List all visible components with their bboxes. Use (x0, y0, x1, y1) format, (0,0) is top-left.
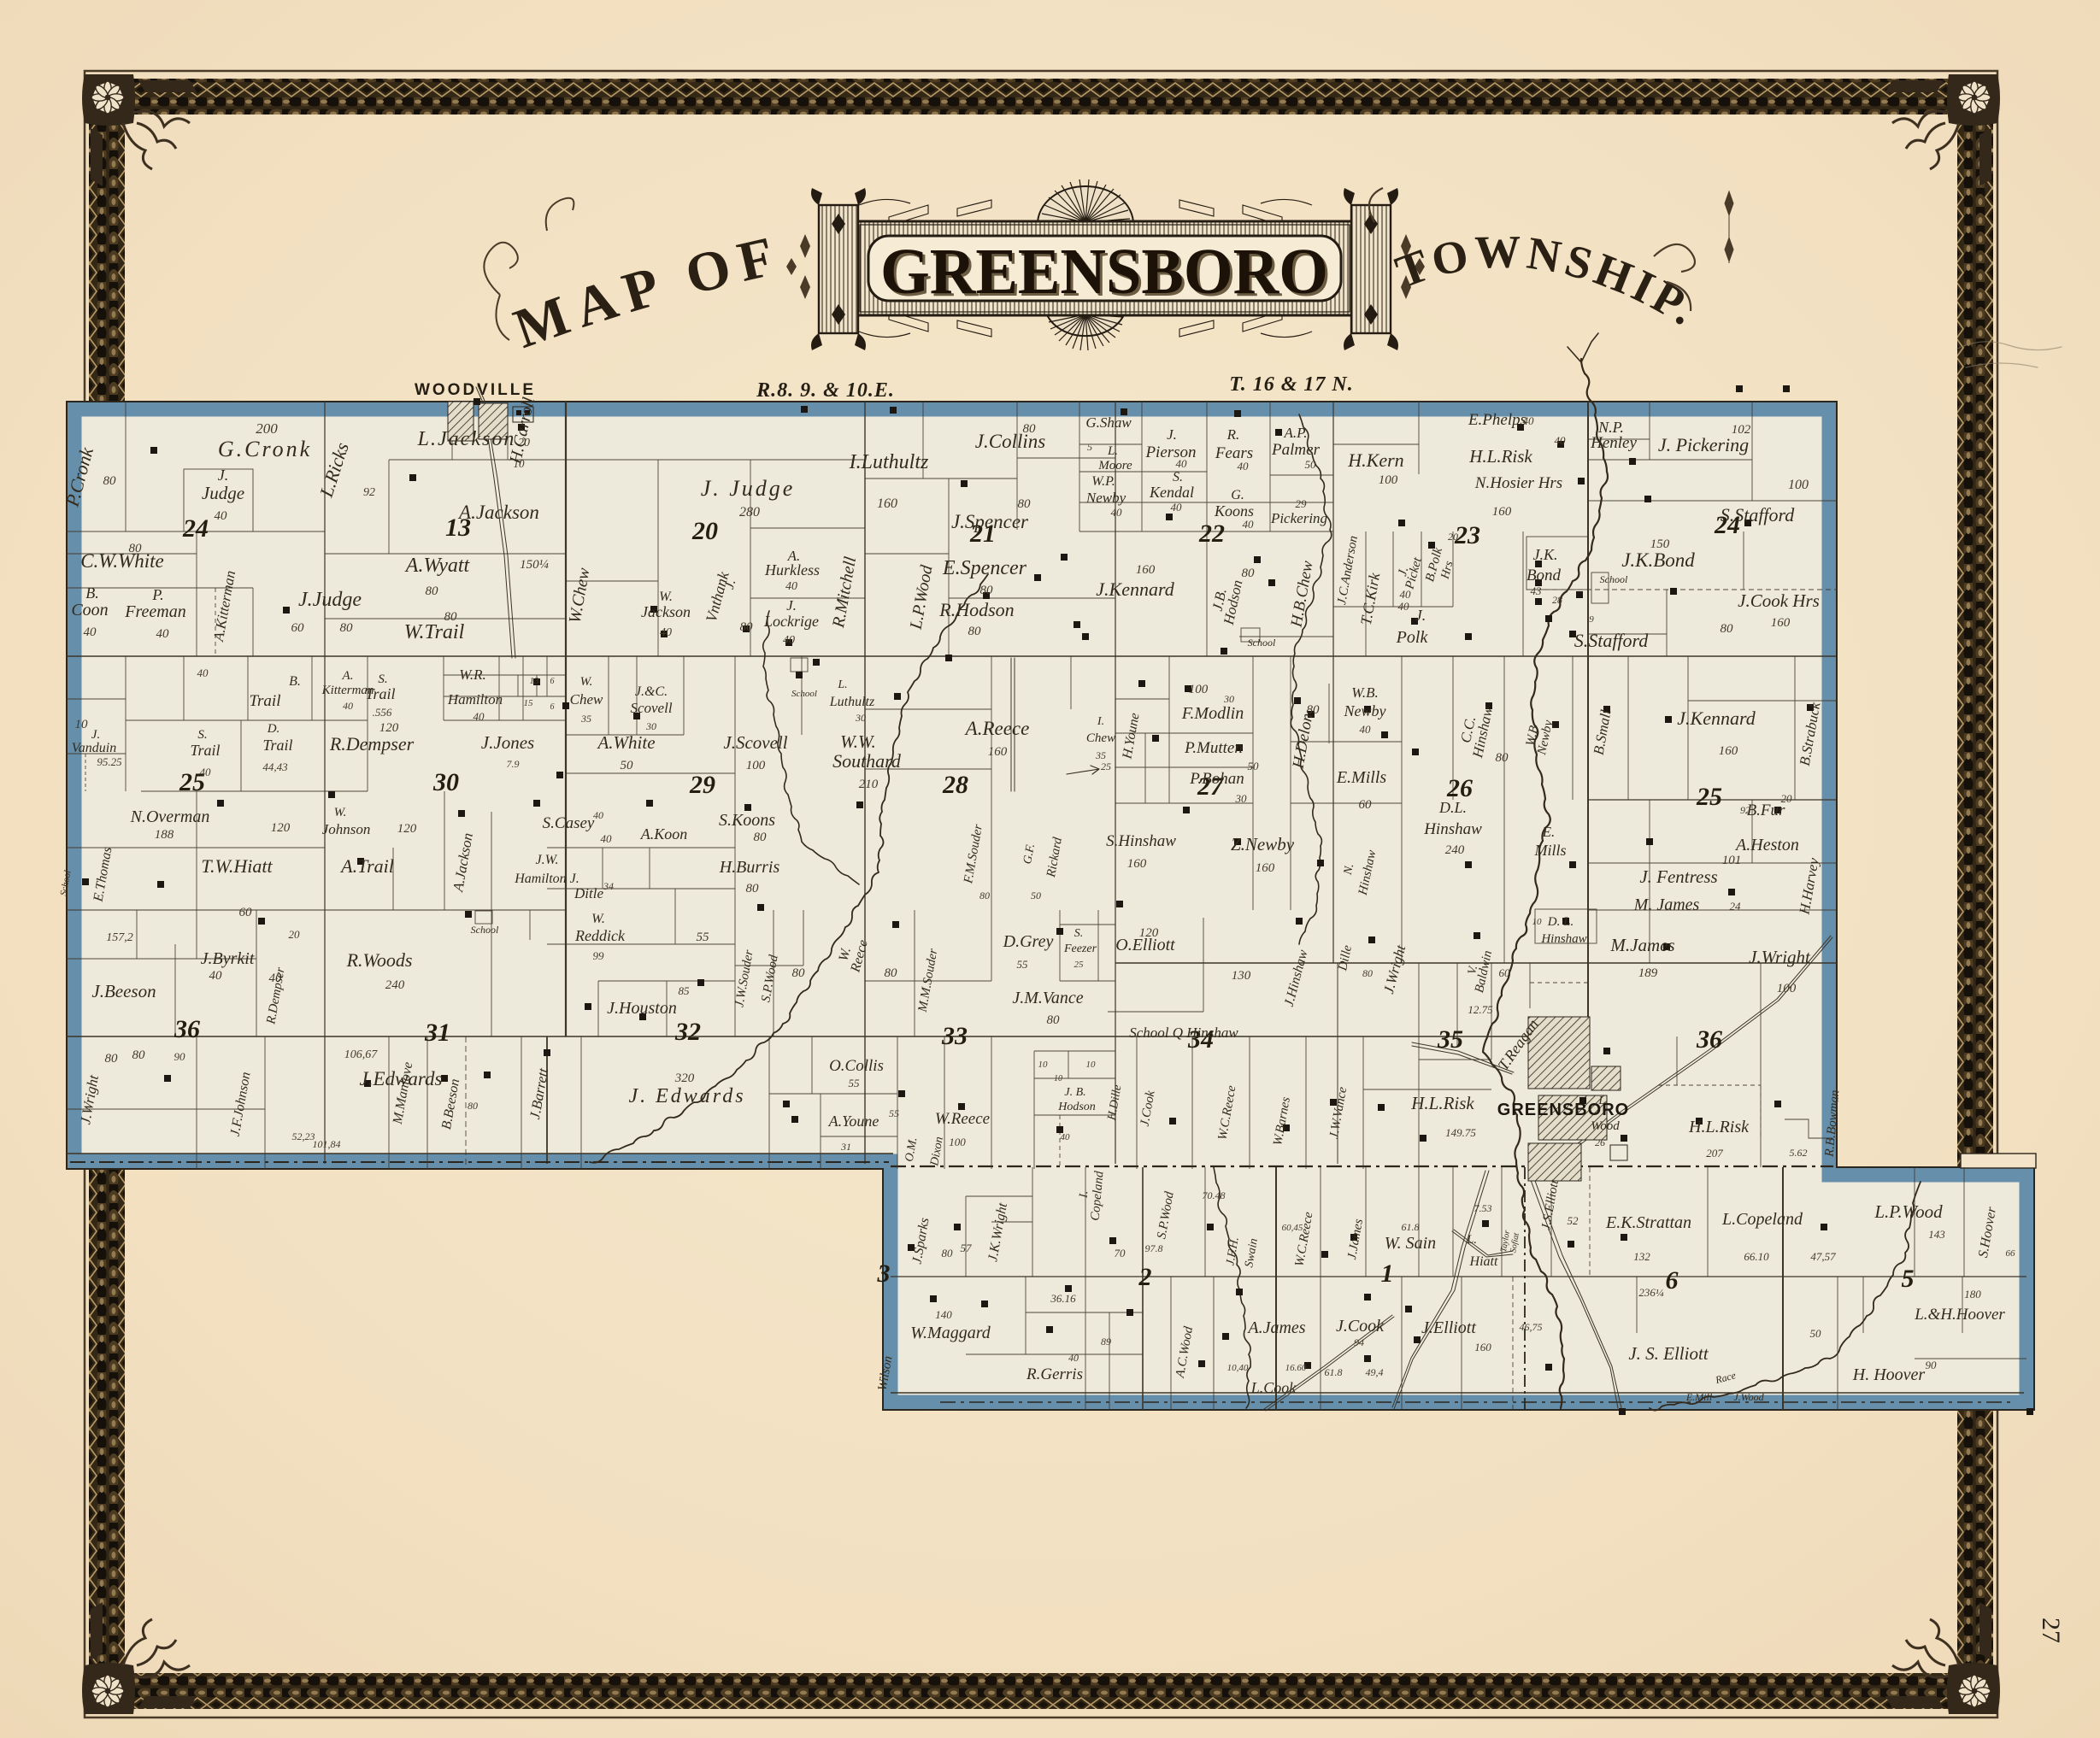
svg-text:Henley: Henley (1590, 434, 1637, 452)
svg-text:L.P.Wood: L.P.Wood (1874, 1201, 1943, 1222)
svg-text:S.Koons: S.Koons (719, 811, 775, 830)
svg-text:188: 188 (155, 828, 174, 842)
svg-text:J.Judge: J.Judge (298, 589, 362, 611)
svg-text:320: 320 (674, 1072, 695, 1085)
svg-text:80: 80 (129, 542, 143, 555)
svg-text:32: 32 (674, 1018, 701, 1046)
svg-text:20: 20 (1781, 792, 1793, 805)
svg-text:60: 60 (1499, 966, 1511, 979)
svg-text:School: School (791, 689, 817, 699)
svg-text:28: 28 (942, 771, 968, 799)
svg-text:70.48: 70.48 (1203, 1189, 1226, 1201)
svg-text:66.10: 66.10 (1744, 1250, 1769, 1263)
svg-text:236¼: 236¼ (1638, 1286, 1664, 1299)
svg-text:40: 40 (156, 627, 170, 641)
svg-text:Hiatt: Hiatt (1469, 1254, 1498, 1269)
svg-text:6: 6 (550, 677, 555, 686)
svg-text:80: 80 (1018, 497, 1032, 511)
svg-text:J. Pickering: J. Pickering (1658, 434, 1749, 455)
svg-text:35: 35 (1095, 749, 1106, 761)
svg-text:A.P.: A.P. (1283, 425, 1307, 441)
svg-text:J.Beeson: J.Beeson (91, 981, 156, 1001)
svg-text:I.: I. (1097, 715, 1104, 728)
svg-text:B.: B. (85, 584, 99, 602)
svg-text:30: 30 (645, 720, 656, 732)
svg-text:R.Woods: R.Woods (346, 949, 413, 971)
svg-text:10: 10 (1038, 1060, 1049, 1070)
svg-text:101,84: 101,84 (313, 1138, 341, 1150)
svg-text:94: 94 (1354, 1336, 1364, 1348)
svg-text:10: 10 (1086, 1060, 1097, 1070)
svg-text:J.K.Bond: J.K.Bond (1621, 549, 1695, 571)
svg-text:D.: D. (267, 722, 280, 736)
svg-text:160: 160 (1136, 563, 1156, 577)
svg-text:44,43: 44,43 (262, 760, 288, 773)
svg-text:40: 40 (1061, 1132, 1071, 1142)
svg-text:Southard: Southard (832, 750, 902, 772)
svg-text:12.75: 12.75 (1468, 1003, 1493, 1016)
svg-text:J.: J. (1415, 607, 1426, 624)
svg-text:A.Heston: A.Heston (1734, 836, 1799, 854)
svg-text:20: 20 (1448, 531, 1458, 543)
svg-text:5: 5 (1087, 441, 1092, 453)
svg-text:Hurkless: Hurkless (764, 561, 820, 578)
svg-text:52: 52 (1568, 1214, 1579, 1227)
svg-text:80: 80 (340, 621, 354, 635)
svg-text:WOODVILLE: WOODVILLE (415, 381, 536, 399)
svg-text:R.Hodson: R.Hodson (938, 599, 1014, 620)
svg-text:80: 80 (1362, 967, 1373, 979)
svg-text:J.Cook: J.Cook (1336, 1317, 1385, 1336)
svg-text:80: 80 (468, 1100, 478, 1112)
svg-text:Bond: Bond (1526, 567, 1562, 584)
svg-text:Johnson: Johnson (322, 821, 371, 837)
svg-text:80: 80 (1242, 567, 1256, 580)
svg-text:GREENSBORO: GREENSBORO (880, 236, 1328, 308)
svg-text:A.Koon: A.Koon (640, 825, 688, 843)
svg-text:80: 80 (754, 831, 768, 844)
svg-text:W.B.: W.B. (1351, 684, 1379, 701)
svg-text:80: 80 (444, 610, 458, 624)
svg-text:7.53: 7.53 (1474, 1202, 1492, 1214)
svg-text:120: 120 (397, 822, 417, 836)
svg-text:Scovell: Scovell (630, 700, 672, 716)
svg-text:Trail: Trail (262, 737, 292, 754)
svg-text:132: 132 (1633, 1250, 1650, 1263)
svg-text:160: 160 (988, 745, 1008, 759)
svg-text:40: 40 (785, 580, 797, 593)
svg-text:15: 15 (524, 698, 534, 708)
svg-text:Freeman: Freeman (124, 602, 185, 621)
svg-text:46,75: 46,75 (1520, 1321, 1543, 1333)
svg-text:160: 160 (1256, 861, 1275, 875)
svg-text:School: School (1248, 637, 1276, 649)
svg-text:7.9: 7.9 (507, 758, 520, 770)
svg-text:40: 40 (1555, 434, 1567, 447)
svg-text:80: 80 (746, 882, 760, 895)
svg-text:Lockrige: Lockrige (763, 613, 819, 630)
svg-text:29: 29 (1296, 497, 1308, 510)
svg-text:School: School (1600, 573, 1628, 585)
svg-text:W.: W. (659, 590, 673, 604)
svg-text:Mills: Mills (1533, 842, 1566, 859)
svg-text:J.Cook Hrs: J.Cook Hrs (1738, 590, 1820, 611)
svg-text:O.Collis: O.Collis (829, 1057, 884, 1075)
svg-text:36.16: 36.16 (1050, 1292, 1076, 1305)
svg-text:70: 70 (1115, 1247, 1126, 1259)
svg-text:F.Modlin: F.Modlin (1181, 704, 1244, 723)
svg-text:H.Burris: H.Burris (719, 858, 780, 877)
svg-text:35: 35 (1437, 1025, 1463, 1054)
svg-text:5.62: 5.62 (1790, 1147, 1808, 1159)
svg-text:31: 31 (840, 1141, 851, 1153)
svg-text:Trail: Trail (250, 692, 281, 710)
svg-text:Hinshaw: Hinshaw (1423, 820, 1482, 838)
svg-text:GREENSBORO: GREENSBORO (1497, 1101, 1629, 1119)
svg-text:M. James: M. James (1633, 895, 1700, 914)
svg-text:A.Youne: A.Youne (828, 1113, 879, 1130)
svg-text:J.W.: J.W. (536, 853, 559, 867)
svg-text:61.8: 61.8 (1402, 1221, 1420, 1233)
svg-text:L.&H.Hoover: L.&H.Hoover (1914, 1306, 2005, 1324)
svg-text:S.: S. (1074, 927, 1084, 940)
svg-text:180: 180 (1964, 1288, 1981, 1301)
svg-text:3: 3 (877, 1259, 891, 1288)
svg-text:M.James: M.James (1609, 935, 1674, 955)
svg-text:50: 50 (1031, 890, 1041, 901)
svg-text:J.Jones: J.Jones (481, 732, 534, 753)
svg-text:13: 13 (530, 676, 540, 686)
svg-text:J.Wright: J.Wright (1749, 947, 1811, 967)
svg-text:280: 280 (739, 505, 760, 520)
svg-text:Polk: Polk (1396, 628, 1429, 647)
svg-text:S.Stafford: S.Stafford (1574, 630, 1650, 651)
svg-text:J. Fentress: J. Fentress (1639, 866, 1717, 887)
svg-text:143: 143 (1928, 1228, 1945, 1241)
svg-text:6: 6 (550, 702, 555, 712)
svg-text:W.: W. (591, 912, 605, 926)
svg-text:A.James: A.James (1246, 1318, 1305, 1337)
svg-text:47,57: 47,57 (1810, 1250, 1836, 1263)
svg-text:100: 100 (1189, 683, 1209, 696)
svg-text:30: 30 (1223, 693, 1234, 705)
svg-text:40: 40 (84, 625, 97, 639)
svg-text:E.: E. (1542, 824, 1556, 840)
svg-text:E.Phelps: E.Phelps (1468, 411, 1526, 429)
svg-text:28: 28 (1552, 594, 1562, 606)
svg-text:9: 9 (1589, 614, 1594, 625)
svg-text:Feezer: Feezer (1063, 942, 1097, 955)
svg-text:H.L.Risk: H.L.Risk (1468, 446, 1532, 467)
svg-text:L.Jackson: L.Jackson (417, 428, 516, 450)
svg-text:W.Maggard: W.Maggard (910, 1324, 991, 1342)
svg-text:50: 50 (1248, 760, 1260, 772)
svg-text:N.Overman: N.Overman (130, 807, 210, 826)
svg-text:160: 160 (1719, 744, 1738, 758)
svg-text:P.Bohan: P.Bohan (1189, 770, 1244, 788)
svg-text:A.Wyatt: A.Wyatt (404, 555, 471, 577)
svg-text:61.8: 61.8 (1325, 1366, 1343, 1378)
svg-text:24: 24 (1730, 900, 1742, 913)
svg-text:36: 36 (174, 1015, 200, 1043)
svg-text:School Q Hinshaw: School Q Hinshaw (1129, 1025, 1238, 1041)
svg-text:R.: R. (1226, 426, 1240, 443)
svg-text:80: 80 (792, 966, 806, 980)
svg-text:J.Wood: J.Wood (1733, 1391, 1764, 1403)
svg-text:150: 150 (1650, 537, 1670, 551)
svg-text:40: 40 (1243, 518, 1255, 531)
svg-text:80: 80 (1721, 622, 1734, 636)
svg-text:L.Cook: L.Cook (1250, 1379, 1297, 1396)
svg-text:80: 80 (968, 625, 982, 638)
svg-text:Z.Newby: Z.Newby (1231, 834, 1295, 854)
svg-text:J.: J. (91, 728, 100, 742)
svg-text:24: 24 (182, 514, 209, 543)
svg-text:1: 1 (1381, 1259, 1394, 1288)
svg-text:29: 29 (689, 771, 715, 799)
svg-text:40: 40 (474, 710, 485, 723)
svg-text:40: 40 (209, 969, 223, 983)
svg-text:Chew: Chew (570, 691, 603, 708)
svg-text:30: 30 (1235, 792, 1248, 805)
svg-text:80: 80 (1047, 1013, 1061, 1027)
svg-text:E.K.Strattan: E.K.Strattan (1605, 1213, 1691, 1232)
svg-text:30: 30 (855, 712, 866, 724)
svg-text:33: 33 (941, 1022, 968, 1050)
svg-text:240: 240 (1445, 843, 1465, 857)
svg-text:Wood: Wood (1591, 1119, 1620, 1133)
svg-text:H.Kern: H.Kern (1347, 449, 1403, 471)
svg-text:J. Edwards: J. Edwards (628, 1085, 745, 1107)
svg-text:27: 27 (2037, 1618, 2065, 1643)
svg-text:160: 160 (877, 496, 897, 511)
svg-text:160: 160 (1127, 857, 1147, 871)
svg-text:6: 6 (1666, 1266, 1679, 1295)
svg-text:10: 10 (1054, 1074, 1062, 1083)
svg-text:40: 40 (1400, 588, 1412, 601)
svg-text:J. S. Elliott: J. S. Elliott (1628, 1343, 1709, 1364)
svg-text:207: 207 (1706, 1147, 1723, 1160)
svg-text:140: 140 (935, 1308, 952, 1321)
svg-text:H. Hoover: H. Hoover (1852, 1365, 1926, 1384)
svg-text:D.L.: D.L. (1438, 799, 1467, 816)
svg-text:95.25: 95.25 (97, 755, 122, 768)
svg-text:50: 50 (1810, 1327, 1822, 1340)
svg-text:L.: L. (1466, 1233, 1477, 1247)
svg-text:40: 40 (1523, 414, 1535, 427)
svg-text:J.Scovell: J.Scovell (723, 732, 787, 753)
svg-text:W.W.: W.W. (840, 731, 876, 752)
svg-text:57: 57 (961, 1242, 973, 1254)
svg-text:G.Cronk: G.Cronk (218, 437, 312, 461)
svg-text:26: 26 (1595, 1136, 1605, 1148)
svg-text:Hodson: Hodson (1057, 1101, 1096, 1113)
svg-text:80: 80 (1496, 751, 1509, 765)
svg-text:I.Luthultz: I.Luthultz (849, 451, 929, 473)
svg-text:School: School (471, 924, 499, 936)
svg-text:92: 92 (363, 486, 375, 499)
svg-text:100: 100 (1788, 478, 1809, 492)
svg-text:36: 36 (1696, 1025, 1722, 1054)
svg-text:L.Copeland: L.Copeland (1721, 1210, 1803, 1229)
svg-text:31: 31 (424, 1019, 450, 1047)
svg-text:40: 40 (1068, 1352, 1079, 1364)
svg-text:A.White: A.White (596, 732, 655, 753)
svg-text:100: 100 (746, 759, 766, 772)
svg-text:55: 55 (697, 931, 710, 944)
svg-text:J.Kennard: J.Kennard (1096, 578, 1174, 600)
svg-text:Ditle: Ditle (574, 885, 603, 901)
svg-text:L.: L. (837, 678, 847, 691)
svg-text:25: 25 (1074, 960, 1085, 970)
svg-text:80: 80 (103, 474, 117, 488)
svg-text:40: 40 (783, 634, 795, 647)
svg-text:40: 40 (1171, 501, 1183, 514)
svg-text:10,40: 10,40 (1227, 1363, 1249, 1373)
svg-text:W.: W. (580, 675, 593, 689)
svg-text:D. L.: D. L. (1547, 915, 1574, 929)
svg-text:40: 40 (1176, 457, 1188, 470)
svg-text:120: 120 (271, 821, 291, 835)
svg-text:5: 5 (1902, 1265, 1915, 1293)
svg-text:G.: G. (1231, 488, 1244, 502)
svg-text:S.Hinshaw: S.Hinshaw (1106, 832, 1176, 850)
svg-text:.556: .556 (373, 706, 392, 719)
svg-text:80: 80 (979, 890, 990, 901)
svg-text:W. Sain: W. Sain (1385, 1234, 1436, 1253)
svg-text:100: 100 (949, 1136, 966, 1148)
svg-text:S.: S. (1173, 470, 1183, 484)
svg-text:160: 160 (1771, 616, 1791, 630)
svg-text:J.Kennard: J.Kennard (1677, 708, 1756, 729)
svg-text:40: 40 (1111, 506, 1123, 519)
svg-text:30: 30 (432, 768, 459, 796)
svg-text:Kendal: Kendal (1149, 484, 1194, 501)
svg-text:S.Stafford: S.Stafford (1721, 504, 1796, 526)
svg-text:A.Reece: A.Reece (964, 718, 1030, 739)
svg-text:J. Judge: J. Judge (701, 476, 796, 501)
svg-text:100: 100 (1777, 982, 1797, 995)
svg-text:55: 55 (849, 1077, 861, 1089)
svg-text:T. 16 & 17 N.: T. 16 & 17 N. (1229, 373, 1353, 396)
svg-text:80: 80 (132, 1048, 146, 1062)
svg-text:150¼: 150¼ (520, 558, 549, 572)
svg-text:B.Fur: B.Fur (1747, 801, 1785, 819)
svg-text:85: 85 (679, 984, 691, 997)
svg-text:60: 60 (291, 621, 305, 635)
svg-text:W.: W. (334, 806, 347, 819)
svg-text:W.Reece: W.Reece (935, 1110, 990, 1128)
svg-text:160: 160 (1492, 505, 1512, 519)
svg-text:50: 50 (1305, 458, 1317, 471)
svg-text:W.R.: W.R. (459, 666, 486, 683)
svg-text:40: 40 (215, 509, 228, 523)
svg-text:189: 189 (1638, 966, 1658, 980)
svg-text:L.: L. (1107, 444, 1118, 458)
svg-text:60: 60 (1359, 798, 1373, 812)
svg-text:R.Gerris: R.Gerris (1026, 1365, 1083, 1383)
svg-text:J.Houston: J.Houston (607, 999, 677, 1018)
svg-text:Hamilton: Hamilton (447, 691, 503, 708)
svg-text:Pickering: Pickering (1270, 510, 1327, 526)
svg-text:240: 240 (385, 978, 405, 992)
svg-text:Trail: Trail (190, 742, 220, 759)
svg-text:N.P.: N.P. (1597, 419, 1624, 436)
svg-text:E.Spencer: E.Spencer (942, 557, 1027, 579)
svg-text:Newby: Newby (1344, 702, 1386, 719)
svg-text:20: 20 (289, 928, 301, 941)
svg-text:W.P.: W.P. (1091, 474, 1115, 489)
svg-text:E.Mills: E.Mills (1336, 768, 1387, 787)
svg-text:40: 40 (343, 700, 353, 712)
svg-text:101: 101 (1722, 854, 1742, 867)
svg-text:S.: S. (378, 672, 387, 686)
svg-text:40: 40 (1360, 723, 1372, 736)
svg-text:Pierson: Pierson (1144, 443, 1196, 461)
svg-text:49,4: 49,4 (1366, 1366, 1384, 1378)
svg-text:40: 40 (1398, 600, 1410, 613)
svg-text:R.Dempser: R.Dempser (329, 733, 415, 755)
svg-text:N.Hosier Hrs: N.Hosier Hrs (1474, 474, 1562, 492)
svg-text:22: 22 (1198, 520, 1225, 548)
svg-text:A.Trail: A.Trail (339, 855, 394, 877)
svg-text:G.Shaw: G.Shaw (1085, 414, 1132, 431)
svg-text:120: 120 (1139, 926, 1159, 940)
svg-text:10: 10 (1532, 917, 1543, 927)
svg-text:80: 80 (1023, 422, 1037, 436)
svg-text:106,67: 106,67 (344, 1048, 379, 1061)
svg-text:55: 55 (1017, 958, 1029, 971)
svg-text:66: 66 (2006, 1248, 2016, 1259)
svg-text:Coon: Coon (71, 601, 108, 619)
svg-text:149.75: 149.75 (1445, 1126, 1476, 1139)
svg-text:157,2: 157,2 (106, 931, 133, 944)
svg-text:43: 43 (1531, 584, 1543, 597)
svg-text:P.Mutten: P.Mutten (1184, 739, 1243, 757)
svg-text:J.: J. (218, 467, 229, 484)
svg-text:90: 90 (174, 1050, 186, 1063)
svg-text:102: 102 (1732, 423, 1751, 437)
svg-text:J.: J. (786, 597, 797, 614)
svg-text:D.Grey: D.Grey (1003, 932, 1054, 951)
svg-text:34: 34 (603, 880, 614, 892)
svg-text:J.Spencer: J.Spencer (951, 511, 1029, 532)
svg-text:J.M.Vance: J.M.Vance (1012, 989, 1083, 1007)
svg-text:100: 100 (1379, 473, 1398, 487)
svg-text:L.: L. (1597, 1095, 1608, 1107)
svg-text:80: 80 (1307, 703, 1321, 717)
svg-text:Moore: Moore (1097, 459, 1132, 473)
svg-text:Kitterman: Kitterman (321, 684, 374, 697)
svg-text:40: 40 (601, 832, 613, 845)
svg-text:C.W.White: C.W.White (80, 550, 164, 572)
svg-text:55: 55 (889, 1107, 899, 1119)
svg-text:25: 25 (1101, 760, 1111, 772)
svg-text:99: 99 (593, 949, 605, 962)
svg-text:80: 80 (740, 620, 754, 634)
svg-text:Hinshaw: Hinshaw (1540, 932, 1586, 946)
svg-text:160: 160 (1474, 1341, 1491, 1353)
svg-text:25: 25 (1696, 783, 1722, 811)
svg-text:80: 80 (105, 1052, 119, 1066)
svg-text:Palmer: Palmer (1271, 441, 1321, 459)
svg-text:89: 89 (1101, 1336, 1111, 1348)
svg-text:97.8: 97.8 (1145, 1242, 1163, 1254)
svg-text:16.60: 16.60 (1285, 1363, 1307, 1373)
svg-text:Jackson: Jackson (641, 603, 691, 620)
svg-text:80: 80 (980, 584, 994, 597)
svg-text:90: 90 (1926, 1359, 1938, 1371)
